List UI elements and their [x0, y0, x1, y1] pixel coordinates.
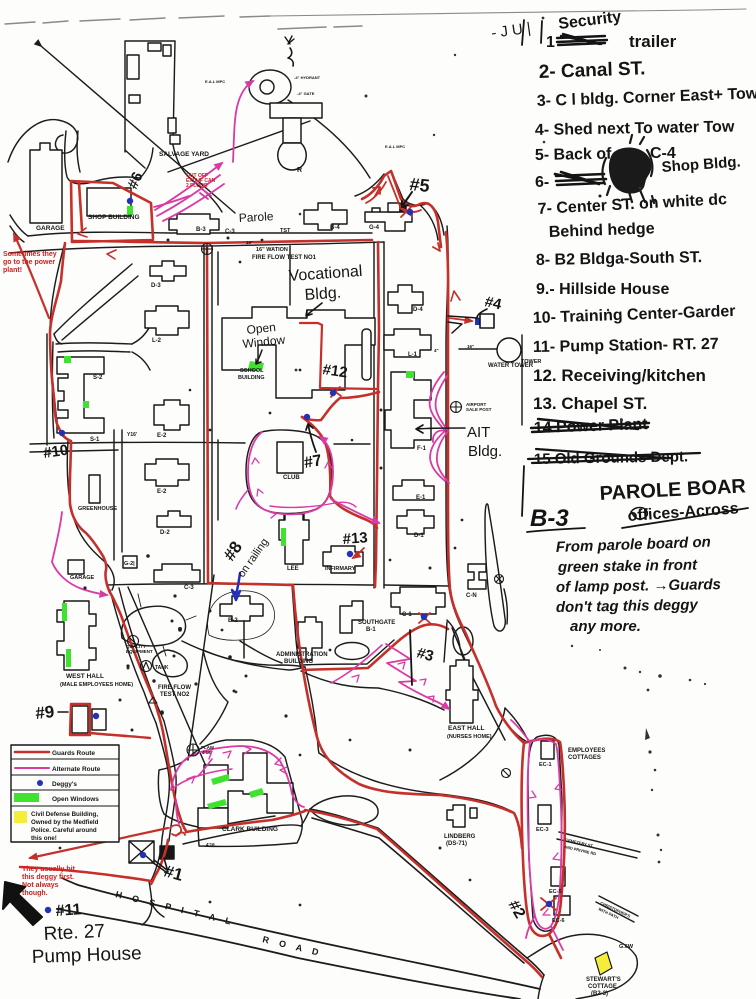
svg-text:B-1: B-1	[366, 627, 376, 633]
svg-text:STEWART'S: STEWART'S	[586, 977, 621, 983]
svg-text:COTTAGE: COTTAGE	[588, 984, 617, 990]
svg-text:C-1: C-1	[402, 612, 412, 618]
svg-text:#8: #8	[220, 538, 246, 564]
svg-text:SALE POST: SALE POST	[466, 407, 492, 412]
svg-text:this deggy first.: this deggy first.	[22, 874, 74, 881]
svg-text:13. Chapel ST.: 13. Chapel ST.	[533, 394, 647, 413]
svg-text:Civil Defense Building,: Civil Defense Building,	[31, 811, 98, 818]
svg-text:11- Pump Station- RT. 27: 11- Pump Station- RT. 27	[533, 336, 719, 356]
svg-text:though.: though.	[22, 890, 48, 897]
svg-text:WEST HALL: WEST HALL	[66, 673, 104, 680]
svg-text:EC-3: EC-3	[536, 827, 549, 833]
svg-text:D-3: D-3	[151, 283, 161, 289]
svg-text:(NURSES HOME): (NURSES HOME)	[447, 734, 492, 740]
svg-text:plant!: plant!	[3, 267, 22, 274]
svg-text:Y16': Y16'	[127, 432, 137, 438]
svg-text:C-3: C-3	[225, 229, 235, 235]
svg-text:Parole: Parole	[238, 209, 274, 225]
svg-text:Deggy's: Deggy's	[52, 781, 77, 788]
svg-text:3- C l bldg. Corner East+ Tow: 3- C l bldg. Corner East+ Tow	[537, 85, 756, 110]
svg-text:don't tag this deggy: don't tag this deggy	[556, 597, 699, 616]
svg-text:Sometimes they: Sometimes they	[3, 251, 57, 258]
svg-text:Open Windows: Open Windows	[52, 796, 99, 803]
svg-text:4'16: 4'16	[202, 750, 211, 755]
svg-text:Owned by the Medfield: Owned by the Medfield	[31, 819, 99, 826]
svg-text:TANK: TANK	[155, 665, 169, 671]
svg-text:9.- Hillside House: 9.- Hillside House	[536, 281, 669, 298]
svg-text:SOUTHGATE: SOUTHGATE	[358, 620, 395, 626]
svg-text:E-2: E-2	[157, 433, 167, 439]
svg-text:8- B2 Bldgа-South ST.: 8- B2 Bldgа-South ST.	[536, 249, 703, 269]
svg-text:EC-5: EC-5	[549, 889, 562, 895]
svg-text:BUILDING: BUILDING	[284, 659, 313, 665]
svg-text:#3: #3	[415, 644, 436, 665]
svg-text:Rte. 27: Rte. 27	[43, 921, 105, 945]
svg-text:E.A.L MPC: E.A.L MPC	[385, 144, 405, 149]
svg-text:From parole board on: From parole board on	[556, 534, 712, 556]
svg-text:(DS-71): (DS-71)	[446, 841, 467, 847]
svg-text:S-1: S-1	[90, 437, 100, 443]
svg-text:Alternate Route: Alternate Route	[52, 766, 101, 773]
svg-text:B-3: B-3	[196, 227, 206, 233]
svg-text:green stake in front: green stake in front	[557, 557, 698, 576]
svg-text:(B2-3): (B2-3)	[591, 991, 608, 997]
svg-text:G-4: G-4	[369, 225, 380, 231]
svg-text:Behind hedge: Behind hedge	[549, 220, 655, 241]
svg-text:B-4: B-4	[330, 225, 340, 231]
svg-text:4'16: 4'16	[206, 842, 215, 847]
svg-text:offices-Across: offices-Across	[627, 500, 739, 525]
svg-text:E-2: E-2	[157, 489, 167, 495]
svg-text:D-1: D-1	[414, 533, 424, 539]
svg-text:LEE: LEE	[287, 566, 299, 572]
svg-text:7- Center ST. on white dc: 7- Center ST. on white dc	[537, 191, 727, 218]
svg-text:E-1: E-1	[416, 495, 426, 501]
svg-text:ADMINISTRATION: ADMINISTRATION	[276, 652, 328, 658]
svg-text:1: 1	[546, 34, 555, 51]
svg-text:LINDBERG: LINDBERG	[444, 834, 476, 840]
svg-text:on railing: on railing	[236, 536, 271, 579]
svg-text:Police. Careful around: Police. Careful around	[31, 827, 97, 834]
svg-text:D-4: D-4	[413, 307, 423, 313]
svg-text:EAST HALL: EAST HALL	[448, 725, 485, 732]
svg-text:GARAGE: GARAGE	[36, 225, 65, 232]
svg-text:#10: #10	[42, 442, 69, 462]
svg-text:TST: TST	[280, 228, 291, 234]
svg-text:S-2: S-2	[93, 375, 103, 381]
svg-text:- J U |: - J U |	[490, 20, 532, 42]
svg-text:16": 16"	[246, 240, 253, 245]
svg-text:EC-6: EC-6	[552, 918, 565, 924]
svg-text:this one!: this one!	[31, 835, 57, 842]
svg-text:They usually hit: They usually hit	[22, 866, 76, 873]
svg-text:L-2: L-2	[152, 338, 162, 344]
svg-text:of lamp post. →Guards: of lamp post. →Guards	[556, 576, 721, 596]
svg-text:L-1: L-1	[408, 352, 418, 358]
svg-text:FIRE FLOW TEST NO1: FIRE FLOW TEST NO1	[252, 255, 317, 261]
svg-text:AIT: AIT	[467, 424, 490, 441]
svg-text:D-2: D-2	[160, 530, 170, 536]
svg-text:go to the power: go to the power	[3, 259, 55, 266]
svg-text:GREENHOUSE: GREENHOUSE	[78, 506, 117, 512]
svg-text:#7: #7	[303, 452, 324, 472]
svg-text:G.6W: G.6W	[619, 944, 634, 950]
svg-text:GARAGE: GARAGE	[70, 575, 94, 581]
svg-text:Guards Route: Guards Route	[52, 750, 95, 757]
svg-text:G-2|: G-2|	[124, 561, 135, 567]
svg-text:EMPLOYEES: EMPLOYEES	[568, 748, 605, 754]
svg-text:Vocational: Vocational	[288, 263, 363, 285]
svg-text:Not always: Not always	[22, 882, 59, 889]
svg-text:CLUB: CLUB	[283, 475, 300, 481]
svg-text:16" WATION: 16" WATION	[256, 247, 288, 253]
svg-text:#13: #13	[342, 529, 368, 548]
svg-text:COTTAGES: COTTAGES	[568, 755, 601, 761]
svg-text:trailer: trailer	[629, 32, 677, 51]
svg-text:CLARK BUILDING: CLARK BUILDING	[222, 826, 278, 833]
svg-text:10- Training Center-Garder: 10- Training Center-Garder	[533, 303, 736, 327]
svg-text:Bldg.: Bldg.	[468, 443, 502, 460]
svg-text:Pump House: Pump House	[31, 943, 142, 968]
svg-text:C-3: C-3	[184, 585, 194, 591]
svg-text:4": 4"	[434, 348, 439, 353]
svg-text:R: R	[297, 167, 302, 174]
svg-text:B-3: B-3	[530, 505, 569, 532]
svg-text:SALVAGE YARD: SALVAGE YARD	[159, 151, 209, 158]
svg-text:-4" GATE: -4" GATE	[297, 91, 315, 96]
svg-text:5- Back of: 5- Back of	[535, 146, 612, 164]
svg-text:any more.: any more.	[570, 618, 641, 635]
svg-text:Bldg.: Bldg.	[304, 284, 342, 304]
svg-text:#11: #11	[55, 901, 82, 920]
svg-text:-4" HYDRANT: -4" HYDRANT	[294, 75, 321, 80]
svg-text:TOWER: TOWER	[521, 359, 541, 365]
svg-text:BUILDING: BUILDING	[238, 375, 265, 381]
svg-text:(MALE EMPLOYEES HOME): (MALE EMPLOYEES HOME)	[60, 682, 133, 688]
svg-text:EQUIPMENT: EQUIPMENT	[126, 649, 153, 654]
svg-text:SCHOOL: SCHOOL	[240, 368, 264, 374]
svg-text:12. Receiving/kitchen: 12. Receiving/kitchen	[533, 366, 706, 385]
svg-text:E.A.L MPC: E.A.L MPC	[205, 79, 225, 84]
svg-text:4- Shed next To water Tow: 4- Shed next To water Tow	[535, 119, 735, 139]
svg-text:16": 16"	[467, 344, 474, 349]
svg-text:FIRE FLOW: FIRE FLOW	[158, 685, 191, 691]
svg-text:R O A D: R O A D	[262, 934, 324, 958]
svg-text:2- Canal ST.: 2- Canal ST.	[538, 58, 645, 83]
svg-text:#4: #4	[483, 293, 503, 313]
svg-text:F-1: F-1	[417, 446, 427, 452]
svg-text:EC-1: EC-1	[539, 762, 552, 768]
svg-text:6-: 6-	[535, 174, 549, 191]
svg-text:#12: #12	[321, 361, 348, 381]
svg-text:SHOP BUILDING: SHOP BUILDING	[88, 214, 140, 221]
svg-text:INFIRMARY: INFIRMARY	[325, 566, 356, 572]
svg-text:B-2: B-2	[228, 618, 238, 624]
svg-text:TEST NO2: TEST NO2	[160, 692, 190, 698]
svg-text:C-N: C-N	[466, 593, 477, 599]
svg-text:#9: #9	[34, 702, 55, 723]
svg-text:2 FLOOR: 2 FLOOR	[186, 183, 208, 189]
